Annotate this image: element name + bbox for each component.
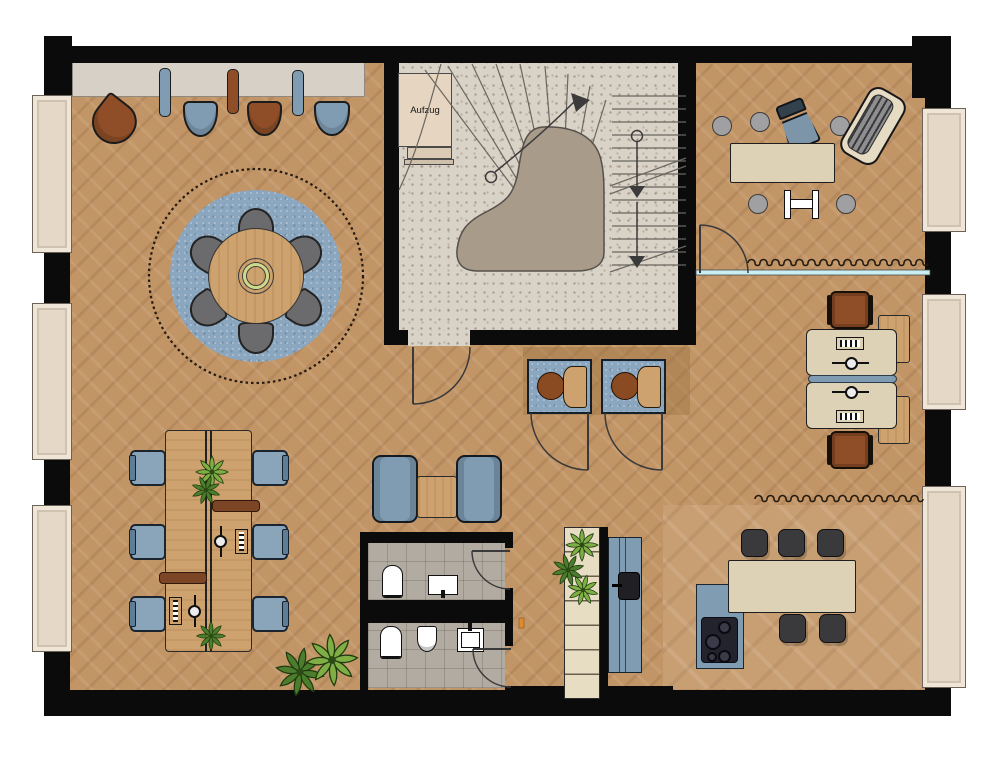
monitor-base (845, 386, 858, 399)
monitor-base (188, 605, 201, 618)
booth-desk (637, 366, 661, 408)
elevator-sill-base (404, 159, 454, 165)
booth-desk (563, 366, 587, 408)
task-chair-blue (130, 596, 166, 632)
elevator-sill (407, 147, 452, 159)
window-right-2 (922, 294, 966, 410)
bath-right-wall-a (505, 532, 513, 548)
table-tray-bottom (159, 572, 207, 584)
booth-stool (611, 372, 639, 400)
bath-top-wall (360, 532, 513, 543)
bath-right-wall-c (505, 686, 513, 702)
bar-stool (779, 614, 806, 643)
h-table-leg (812, 190, 819, 219)
washbasin-tap (441, 590, 445, 598)
office-desk (730, 143, 835, 183)
keyboard (836, 410, 864, 423)
toilet (382, 565, 403, 598)
task-chair-blue (130, 450, 166, 486)
desk-chair-brown-top (830, 291, 870, 329)
toilet (380, 626, 402, 659)
bottom-wall (44, 690, 951, 716)
wall-bench (72, 63, 365, 97)
burner (707, 652, 717, 662)
sofa-side-table (417, 476, 457, 518)
bath-right-wall-b (505, 588, 513, 646)
stair-door-threshold (408, 330, 470, 346)
round-stool (748, 194, 768, 214)
keyboard (836, 337, 864, 350)
floor-plan: Aufzug (0, 0, 1004, 760)
elevator-label: Aufzug (410, 105, 440, 116)
task-chair-blue (130, 524, 166, 560)
bath-mid-wall (360, 600, 513, 623)
stair-right-wall (678, 46, 696, 345)
desk-divider (808, 375, 897, 383)
sink-tap (468, 623, 472, 631)
bar-stool (817, 529, 844, 557)
keyboard (169, 597, 182, 625)
window-right-1 (922, 108, 966, 232)
booth-stool (537, 372, 565, 400)
task-chair-blue (252, 450, 288, 486)
plant-shelf-unit (564, 527, 600, 699)
bench-panel-brown (227, 69, 239, 114)
cabinet-handle (612, 584, 622, 587)
urinal (417, 626, 437, 652)
stair-bottom-wall-left (384, 330, 408, 345)
round-stool (750, 112, 770, 132)
bar-stool (819, 614, 846, 643)
desk-chair-brown-bottom (830, 431, 870, 469)
table-centerpiece-inner (243, 263, 269, 289)
bench-panel-blue-1 (159, 68, 171, 117)
window-right-3 (922, 486, 966, 688)
burner (718, 650, 731, 663)
sink (457, 628, 484, 652)
bar-stool (778, 529, 805, 557)
window-left-1 (32, 95, 72, 253)
window-left-3 (32, 505, 72, 652)
round-stool (836, 194, 856, 214)
table-tray-top (212, 500, 260, 512)
lounge-sofa-left (372, 455, 418, 523)
h-table-beam (790, 199, 813, 209)
stair-bottom-wall-right (470, 330, 696, 345)
table-center-rail (205, 431, 207, 651)
burner (705, 634, 721, 650)
elevator: Aufzug (398, 73, 452, 147)
task-chair-blue (252, 524, 288, 560)
keyboard (235, 529, 248, 554)
bench-panel-blue-2 (292, 70, 304, 116)
table-center-rail (210, 431, 212, 651)
kitchen-table (728, 560, 856, 613)
bar-stool (741, 529, 768, 557)
burner (718, 621, 731, 634)
window-left-2 (32, 303, 72, 460)
monitor-base (214, 535, 227, 548)
task-chair-blue (252, 596, 288, 632)
lounge-sofa-right (456, 455, 502, 523)
stair-left-wall (384, 46, 399, 345)
top-wall (44, 46, 951, 63)
tall-cabinet (608, 537, 642, 673)
monitor-base (845, 357, 858, 370)
round-stool (712, 116, 732, 136)
